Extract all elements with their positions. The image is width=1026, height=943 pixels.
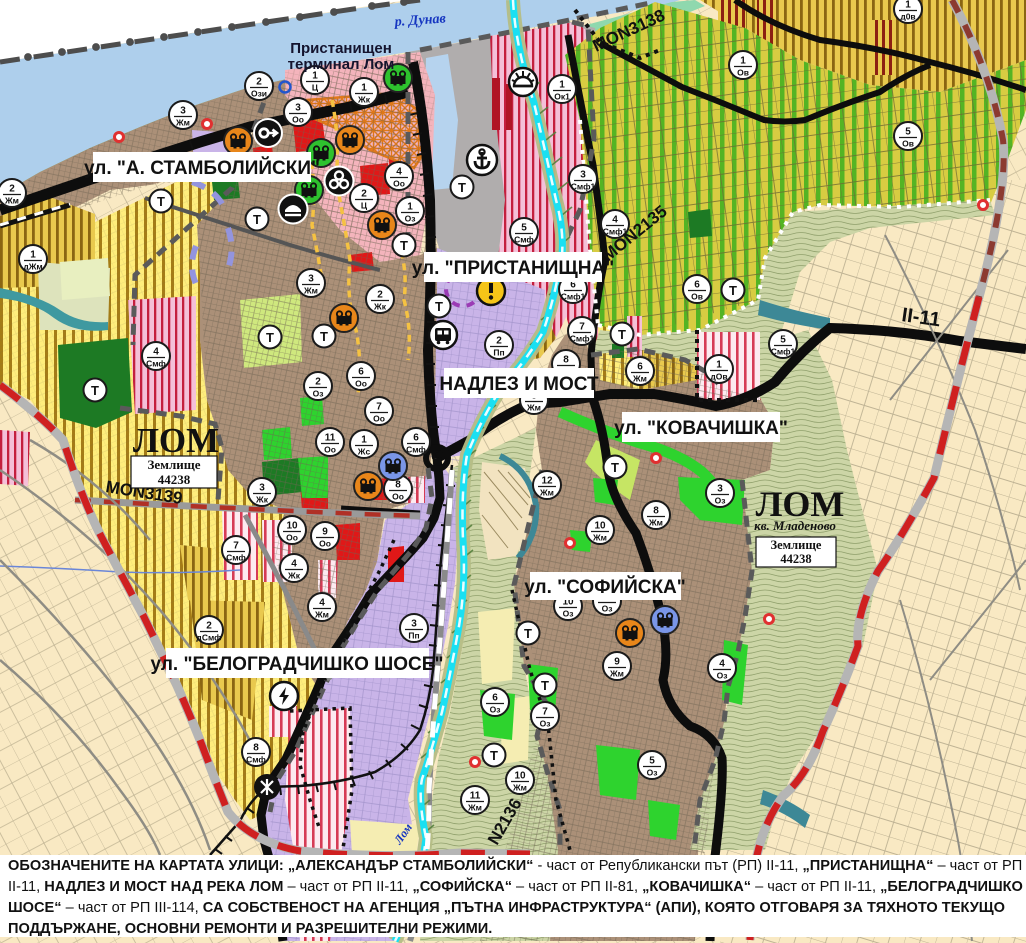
svg-text:ул. "А. СТАМБОЛИЙСКИ": ул. "А. СТАМБОЛИЙСКИ"	[84, 157, 320, 179]
svg-text:Т: Т	[618, 327, 626, 342]
svg-text:7: 7	[579, 322, 585, 333]
svg-text:Жк: Жк	[287, 571, 301, 581]
svg-text:Жк: Жк	[357, 95, 371, 105]
svg-text:4: 4	[291, 559, 297, 570]
svg-text:9: 9	[322, 527, 328, 538]
svg-text:Оз: Оз	[540, 719, 551, 729]
svg-text:Жм: Жм	[592, 533, 607, 543]
svg-text:Оз: Оз	[313, 389, 324, 399]
svg-text:Т: Т	[541, 678, 549, 693]
svg-text:Оо: Оо	[355, 379, 367, 389]
svg-text:ул. "КОВАЧИШКА": ул. "КОВАЧИШКА"	[614, 418, 788, 439]
svg-text:Т: Т	[91, 383, 99, 398]
svg-text:Т: Т	[458, 180, 466, 195]
svg-text:Оо: Оо	[373, 414, 385, 424]
svg-text:44238: 44238	[158, 472, 191, 487]
svg-text:1: 1	[905, 0, 911, 11]
svg-text:НАДЛЕЗ И МОСТ: НАДЛЕЗ И МОСТ	[439, 374, 599, 395]
svg-text:Оо: Оо	[392, 492, 404, 502]
svg-text:3: 3	[580, 170, 586, 181]
svg-text:Оз: Оз	[647, 768, 658, 778]
svg-text:Жм: Жм	[539, 488, 554, 498]
svg-text:6: 6	[358, 367, 364, 378]
svg-text:8: 8	[653, 506, 659, 517]
svg-text:Жм: Жм	[467, 803, 482, 813]
svg-text:Жс: Жс	[357, 447, 371, 457]
svg-text:4: 4	[612, 215, 618, 226]
svg-text:терминал Лом: терминал Лом	[288, 56, 395, 73]
svg-text:3: 3	[308, 274, 314, 285]
svg-text:Оо: Оо	[324, 445, 336, 455]
svg-text:Ов: Ов	[737, 68, 749, 78]
svg-text:Смф: Смф	[246, 755, 266, 765]
svg-text:Пристанищен: Пристанищен	[290, 40, 392, 57]
svg-text:Жм: Жм	[609, 669, 624, 679]
svg-text:10: 10	[286, 521, 298, 532]
svg-text:Ов: Ов	[902, 139, 914, 149]
svg-text:Т: Т	[253, 212, 261, 227]
svg-text:11: 11	[325, 433, 336, 444]
svg-text:Оо: Оо	[319, 539, 331, 549]
svg-text:Т: Т	[490, 748, 498, 763]
svg-text:5: 5	[649, 756, 655, 767]
svg-text:Т: Т	[611, 460, 619, 475]
svg-text:11: 11	[470, 791, 481, 802]
svg-text:3: 3	[180, 106, 186, 117]
svg-text:1: 1	[716, 360, 722, 371]
svg-text:4: 4	[719, 659, 725, 670]
svg-text:Т: Т	[729, 283, 737, 298]
svg-text:8: 8	[253, 743, 259, 754]
svg-text:Смф1: Смф1	[570, 334, 595, 344]
svg-text:6: 6	[694, 280, 700, 291]
svg-text:7: 7	[233, 541, 239, 552]
svg-text:Жм: Жм	[303, 286, 318, 296]
svg-text:2: 2	[256, 77, 262, 88]
svg-text:д0в: д0в	[900, 12, 915, 22]
svg-text:ул. "БЕЛОГРАДЧИШКО ШОСЕ": ул. "БЕЛОГРАДЧИШКО ШОСЕ"	[151, 654, 444, 675]
svg-text:кв. Младеново: кв. Младеново	[754, 518, 836, 533]
svg-text:3: 3	[717, 484, 723, 495]
svg-text:3: 3	[411, 619, 417, 630]
svg-text:Смф: Смф	[146, 359, 166, 369]
svg-text:Ок1: Ок1	[554, 92, 570, 102]
svg-text:Т: Т	[400, 238, 408, 253]
svg-text:1: 1	[559, 80, 565, 91]
svg-text:Ози: Ози	[251, 89, 267, 99]
svg-text:5: 5	[521, 223, 527, 234]
svg-text:44238: 44238	[780, 552, 811, 566]
svg-text:1: 1	[407, 202, 413, 213]
svg-text:Жм: Жм	[512, 783, 527, 793]
svg-text:1: 1	[30, 250, 36, 261]
svg-text:2: 2	[206, 621, 212, 632]
svg-text:Т: Т	[524, 626, 532, 641]
svg-text:6: 6	[492, 693, 498, 704]
svg-text:9: 9	[614, 657, 620, 668]
svg-text:10: 10	[514, 771, 526, 782]
svg-text:ОБОЗНАЧЕНИТЕ НА КАРТАТА УЛИЦИ:: ОБОЗНАЧЕНИТЕ НА КАРТАТА УЛИЦИ: „АЛЕКСАНД…	[8, 856, 1022, 874]
svg-text:ПОДДЪРЖАНЕ, ОСНОВНИ РЕМОНТИ И: ПОДДЪРЖАНЕ, ОСНОВНИ РЕМОНТИ И РАЗРЕШИТЕЛ…	[8, 921, 492, 937]
svg-text:Оз: Оз	[715, 496, 726, 506]
svg-text:4: 4	[319, 598, 325, 609]
svg-text:ЛОМ: ЛОМ	[133, 421, 219, 460]
svg-text:Жм: Жм	[648, 518, 663, 528]
svg-text:Жк: Жк	[373, 302, 387, 312]
svg-text:3: 3	[295, 103, 301, 114]
svg-text:4: 4	[153, 347, 159, 358]
svg-text:Землище: Землище	[147, 457, 200, 472]
svg-text:Т: Т	[266, 330, 274, 345]
svg-text:ул. "СОФИЙСКА": ул. "СОФИЙСКА"	[524, 576, 686, 598]
svg-text:Смф: Смф	[226, 553, 246, 563]
svg-text:ул. "ПРИСТАНИЩНА": ул. "ПРИСТАНИЩНА"	[412, 258, 615, 279]
svg-text:Ов: Ов	[691, 292, 703, 302]
svg-text:Оо: Оо	[292, 115, 304, 125]
svg-text:8: 8	[395, 480, 401, 491]
svg-text:Смф1: Смф1	[571, 182, 596, 192]
svg-text:Т: Т	[157, 194, 165, 209]
svg-text:Смф1: Смф1	[771, 347, 796, 357]
svg-text:Смф: Смф	[406, 445, 426, 455]
svg-text:Пп: Пп	[493, 348, 504, 358]
svg-text:1: 1	[361, 83, 367, 94]
svg-text:12: 12	[541, 476, 553, 487]
svg-text:2: 2	[361, 189, 367, 200]
svg-text:6: 6	[637, 362, 643, 373]
svg-text:1: 1	[361, 435, 367, 446]
svg-text:Оо: Оо	[393, 179, 405, 189]
svg-text:Т: Т	[320, 329, 328, 344]
svg-text:Смф1: Смф1	[561, 292, 586, 302]
svg-text:6: 6	[413, 433, 419, 444]
svg-text:1: 1	[740, 56, 746, 67]
svg-text:Землище: Землище	[771, 538, 822, 552]
svg-text:Т: Т	[435, 299, 443, 314]
svg-text:Жк: Жк	[255, 495, 269, 505]
svg-text:3: 3	[259, 483, 265, 494]
svg-text:Жм: Жм	[175, 118, 190, 128]
svg-text:5: 5	[780, 335, 786, 346]
svg-text:2: 2	[377, 290, 383, 301]
svg-text:дЖм: дЖм	[23, 262, 42, 272]
svg-text:5: 5	[905, 127, 911, 138]
svg-text:7: 7	[542, 707, 548, 718]
svg-text:7: 7	[376, 402, 382, 413]
svg-text:Смф: Смф	[514, 235, 534, 245]
svg-text:дСмф: дСмф	[196, 633, 222, 643]
svg-text:Оз: Оз	[405, 214, 416, 224]
svg-text:Ц: Ц	[361, 201, 368, 211]
svg-text:II-11, НАДЛЕЗ И МОСТ НАД РЕКА: II-11, НАДЛЕЗ И МОСТ НАД РЕКА ЛОМ – част…	[8, 877, 1023, 895]
svg-text:2: 2	[496, 336, 502, 347]
svg-text:ШОСЕ“ – част от РП III-114, СА: ШОСЕ“ – част от РП III-114, СА СОБСТВЕНО…	[8, 900, 1005, 916]
svg-text:Оо: Оо	[286, 533, 298, 543]
svg-text:Оз: Оз	[602, 604, 613, 614]
svg-text:Ц: Ц	[312, 83, 319, 93]
svg-text:Оз: Оз	[490, 705, 501, 715]
svg-text:Оз: Оз	[717, 671, 728, 681]
svg-text:Жм: Жм	[314, 610, 329, 620]
svg-text:4: 4	[396, 167, 402, 178]
svg-text:Жм: Жм	[4, 196, 19, 206]
svg-text:8: 8	[563, 355, 569, 366]
svg-text:Жм: Жм	[526, 403, 541, 413]
svg-text:Оз: Оз	[563, 609, 574, 619]
svg-text:2: 2	[315, 377, 321, 388]
svg-text:10: 10	[594, 521, 606, 532]
svg-text:Пп: Пп	[408, 631, 419, 641]
svg-text:2: 2	[9, 184, 15, 195]
svg-text:дОв: дОв	[710, 372, 727, 382]
svg-text:Жм: Жм	[632, 374, 647, 384]
